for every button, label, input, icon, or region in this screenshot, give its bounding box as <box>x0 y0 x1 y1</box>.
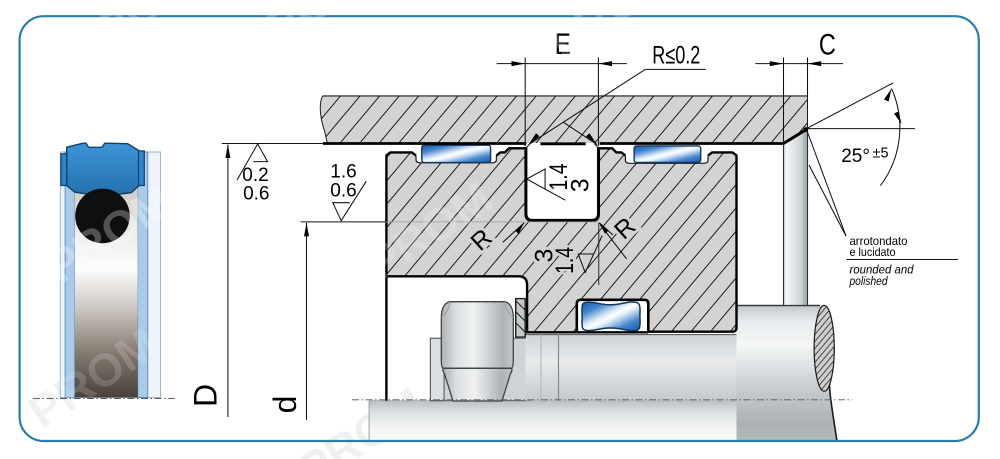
svg-text:25°: 25° <box>841 146 870 167</box>
svg-text:e lucidato: e lucidato <box>850 245 896 259</box>
svg-text:d: d <box>267 396 303 414</box>
svg-text:polished: polished <box>849 274 888 288</box>
svg-text:0.6: 0.6 <box>243 183 269 204</box>
svg-text:D: D <box>188 384 224 407</box>
svg-text:3: 3 <box>567 178 595 192</box>
svg-text:±5: ±5 <box>873 146 889 162</box>
svg-text:1.6: 1.6 <box>330 161 356 182</box>
svg-text:1.4: 1.4 <box>551 247 579 274</box>
svg-text:C: C <box>819 29 836 62</box>
svg-text:0.6: 0.6 <box>330 180 356 201</box>
svg-text:R≤0.2: R≤0.2 <box>652 42 700 70</box>
